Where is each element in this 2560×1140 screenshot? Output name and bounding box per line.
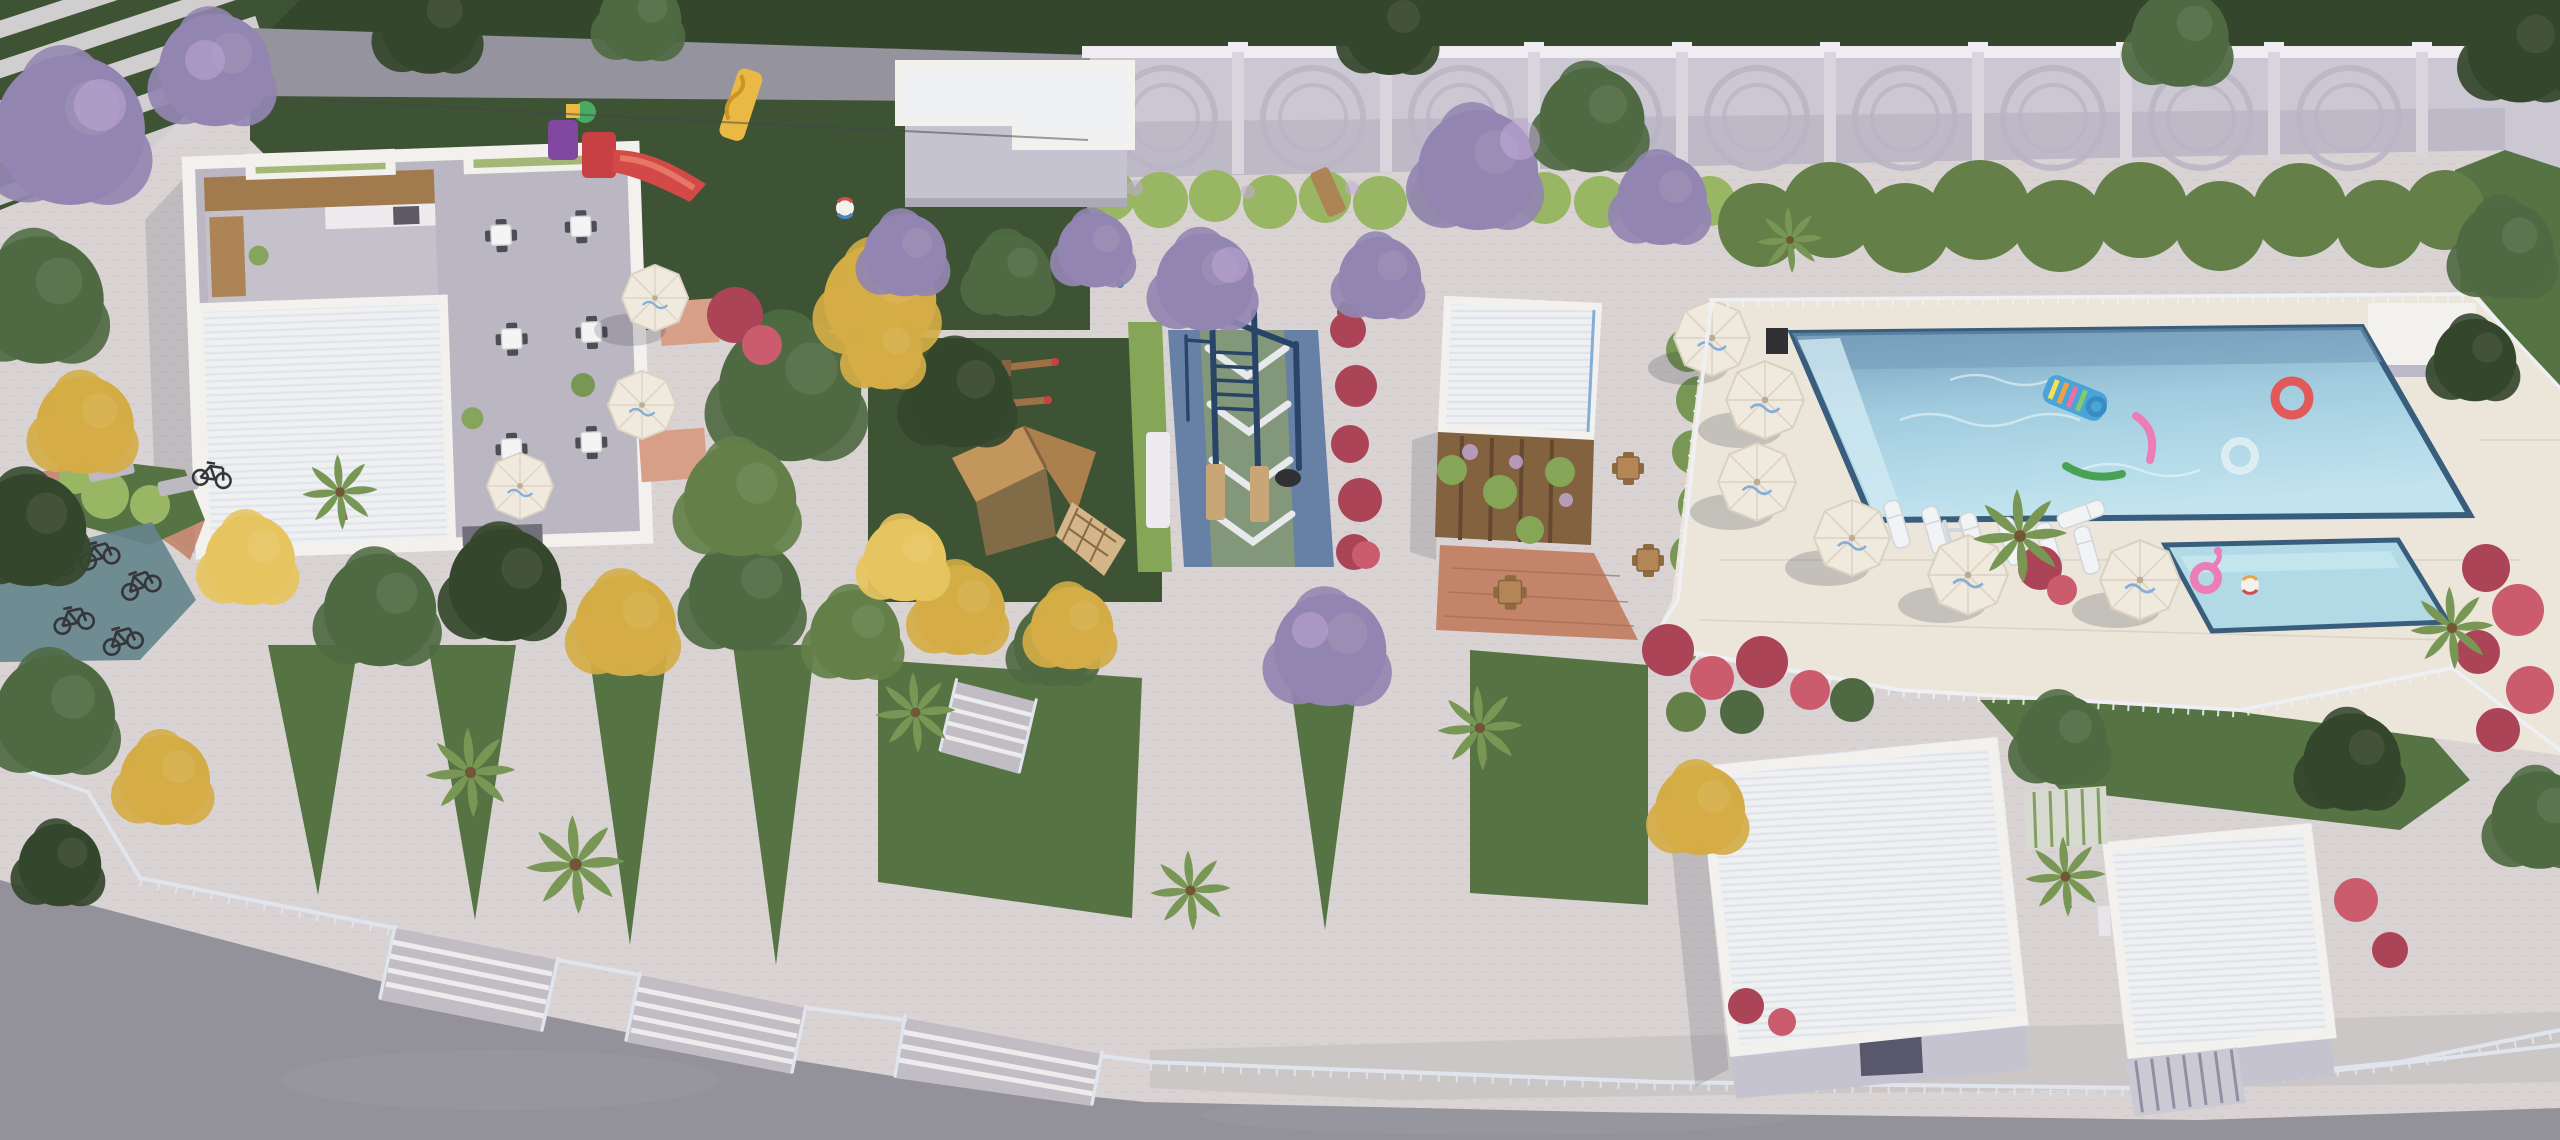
light-overlay (0, 0, 2560, 1140)
aerial-render (0, 0, 2560, 1140)
site-plan-svg (0, 0, 2560, 1140)
